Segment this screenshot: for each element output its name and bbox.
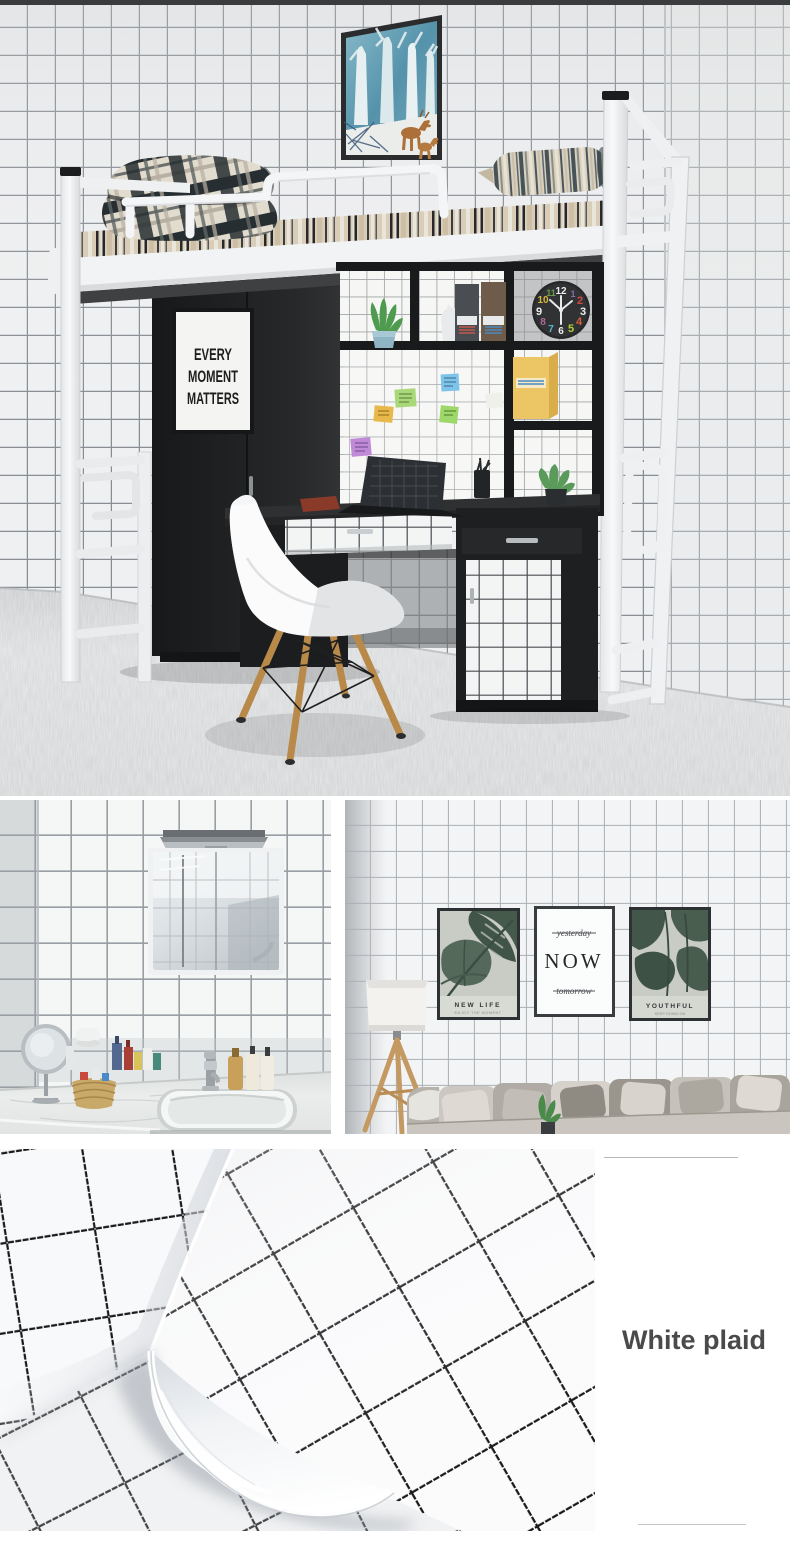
svg-text:EVERY: EVERY [194,345,232,364]
svg-text:KEEP GOING ON: KEEP GOING ON [655,1012,686,1016]
svg-text:NOW: NOW [544,949,603,973]
svg-text:7: 7 [548,324,554,335]
svg-text:9: 9 [536,306,542,318]
svg-text:8: 8 [540,317,546,328]
svg-text:11: 11 [546,288,556,298]
svg-text:NEW LIFE: NEW LIFE [454,1002,501,1009]
svg-text:YOUTHFUL: YOUTHFUL [646,1003,694,1010]
svg-text:4: 4 [576,316,583,328]
svg-text:ENJOY THE MOMENT: ENJOY THE MOMENT [454,1011,501,1015]
svg-text:MATTERS: MATTERS [187,389,239,408]
svg-text:1: 1 [570,289,575,299]
svg-text:MOMENT: MOMENT [188,367,238,386]
svg-text:6: 6 [558,326,564,337]
svg-text:5: 5 [568,323,574,335]
